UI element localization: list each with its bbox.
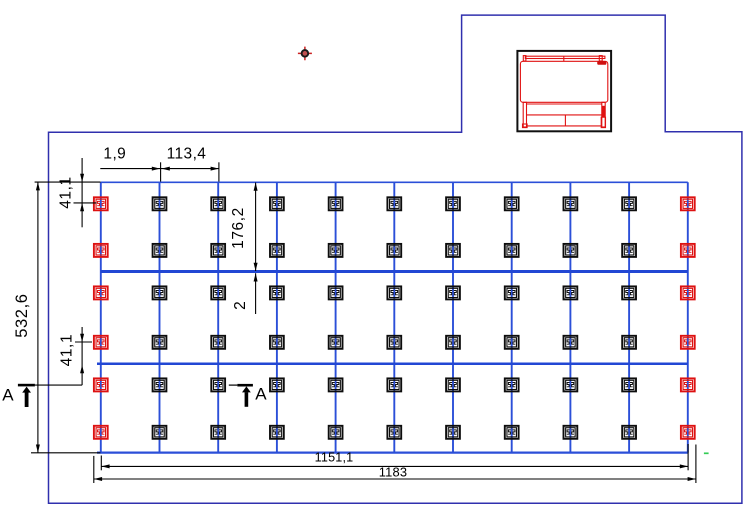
- svg-text:41,1: 41,1: [57, 176, 74, 209]
- svg-text:532,6: 532,6: [13, 293, 31, 337]
- svg-text:1183: 1183: [379, 465, 408, 480]
- svg-text:1151,1: 1151,1: [315, 450, 354, 464]
- svg-text:A: A: [2, 385, 14, 404]
- svg-text:A: A: [255, 385, 267, 404]
- svg-text:41,1: 41,1: [59, 334, 76, 367]
- svg-text:176,2: 176,2: [230, 207, 247, 249]
- svg-text:1,9: 1,9: [103, 146, 126, 163]
- svg-text:113,4: 113,4: [167, 146, 207, 163]
- svg-text:2: 2: [232, 301, 249, 310]
